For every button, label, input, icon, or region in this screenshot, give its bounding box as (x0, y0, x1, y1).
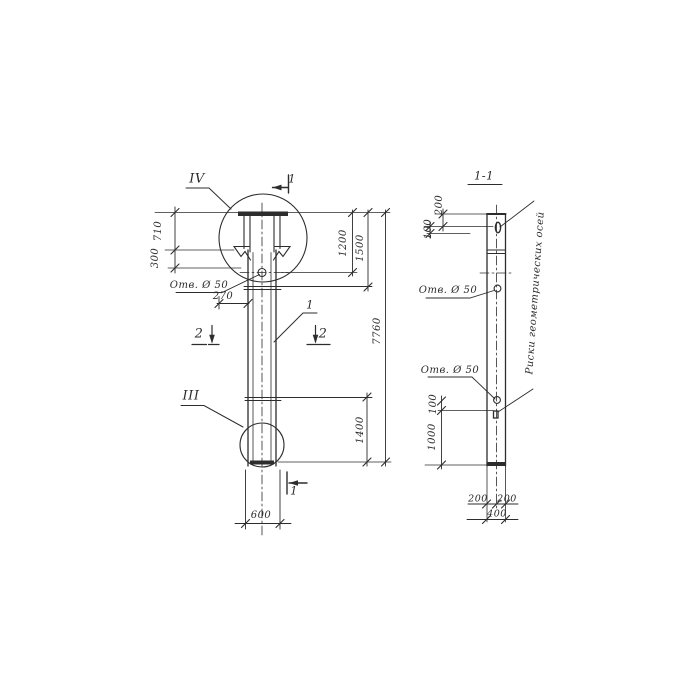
dim-200-right: 200 (497, 494, 517, 504)
detail-iii-label: III (183, 390, 200, 403)
dim-270: 270 (213, 292, 234, 302)
drawing-linework (0, 0, 700, 700)
dim-7760: 7760 (373, 317, 383, 344)
dim-100-mid: 100 (429, 394, 439, 415)
dim-400: 400 (487, 509, 507, 519)
hole-label-lower: Отв. Ø 50 (421, 366, 479, 376)
section-2-left-label: 2 (195, 328, 204, 341)
dim-1000: 1000 (428, 423, 438, 450)
dim-200-top: 200 (435, 195, 445, 216)
section-title-1-1: 1-1 (474, 170, 494, 182)
hole-upper (494, 285, 501, 292)
dim-200-left: 200 (468, 494, 488, 504)
dim-1200: 1200 (339, 229, 349, 256)
dim-710: 710 (154, 221, 164, 242)
part-1-label: 1 (306, 299, 314, 311)
blueprint-canvas: IV 1 710 300 Отв. Ø 50 270 2 2 1 1200 15… (0, 0, 700, 700)
dim-100-top: 100 (424, 219, 434, 240)
axis-mark-lower (494, 411, 499, 418)
detail-iv-label: IV (189, 173, 205, 186)
section-1-bottom-label: 1 (290, 485, 298, 497)
dim-1500: 1500 (356, 234, 366, 261)
hole-label-upper: Отв. Ø 50 (419, 286, 477, 296)
dim-300: 300 (151, 248, 161, 269)
dim-1400: 1400 (356, 416, 366, 443)
section-2-right-label: 2 (319, 328, 328, 341)
hole-label-main: Отв. Ø 50 (170, 281, 228, 291)
section-1-top-label: 1 (288, 173, 296, 185)
hole-lower (494, 397, 501, 404)
dim-600: 600 (251, 511, 272, 521)
